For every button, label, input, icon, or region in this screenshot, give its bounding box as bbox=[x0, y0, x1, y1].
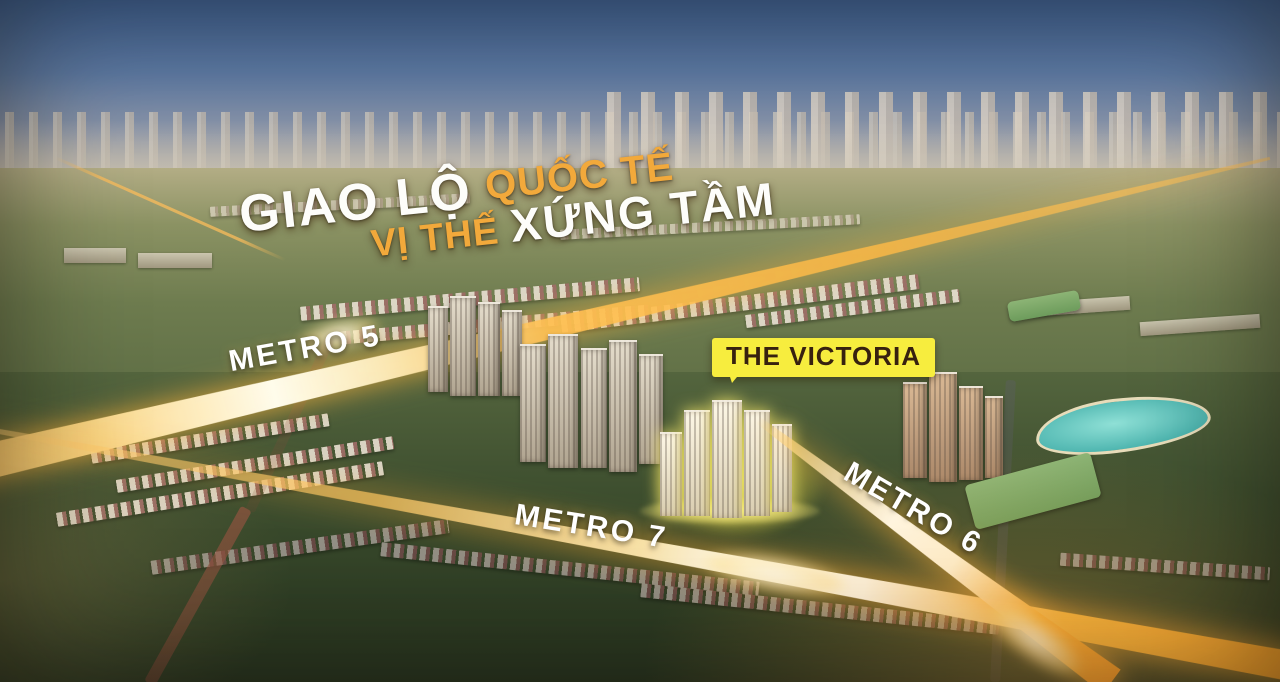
aerial-masterplan-poster: GIAO LỘ QUỐC TẾ VỊ THẾ XỨNG TẦM METRO 5 … bbox=[0, 0, 1280, 682]
victoria-tower bbox=[684, 410, 710, 516]
tower bbox=[478, 302, 500, 396]
tower bbox=[985, 396, 1003, 478]
tower bbox=[428, 306, 448, 392]
tower bbox=[548, 334, 578, 468]
distant-apartment-slab bbox=[138, 253, 212, 268]
tower bbox=[609, 340, 637, 472]
tower bbox=[450, 296, 476, 396]
victoria-tower bbox=[660, 432, 682, 516]
victoria-tower bbox=[712, 400, 742, 518]
tower bbox=[929, 372, 957, 482]
tower bbox=[903, 382, 927, 478]
victoria-callout-label: THE VICTORIA bbox=[726, 341, 921, 371]
tower bbox=[581, 348, 607, 468]
tower bbox=[502, 310, 522, 396]
tower bbox=[520, 344, 546, 462]
distant-apartment-slab bbox=[64, 248, 126, 263]
victoria-callout: THE VICTORIA bbox=[712, 338, 935, 377]
tower bbox=[959, 386, 983, 480]
